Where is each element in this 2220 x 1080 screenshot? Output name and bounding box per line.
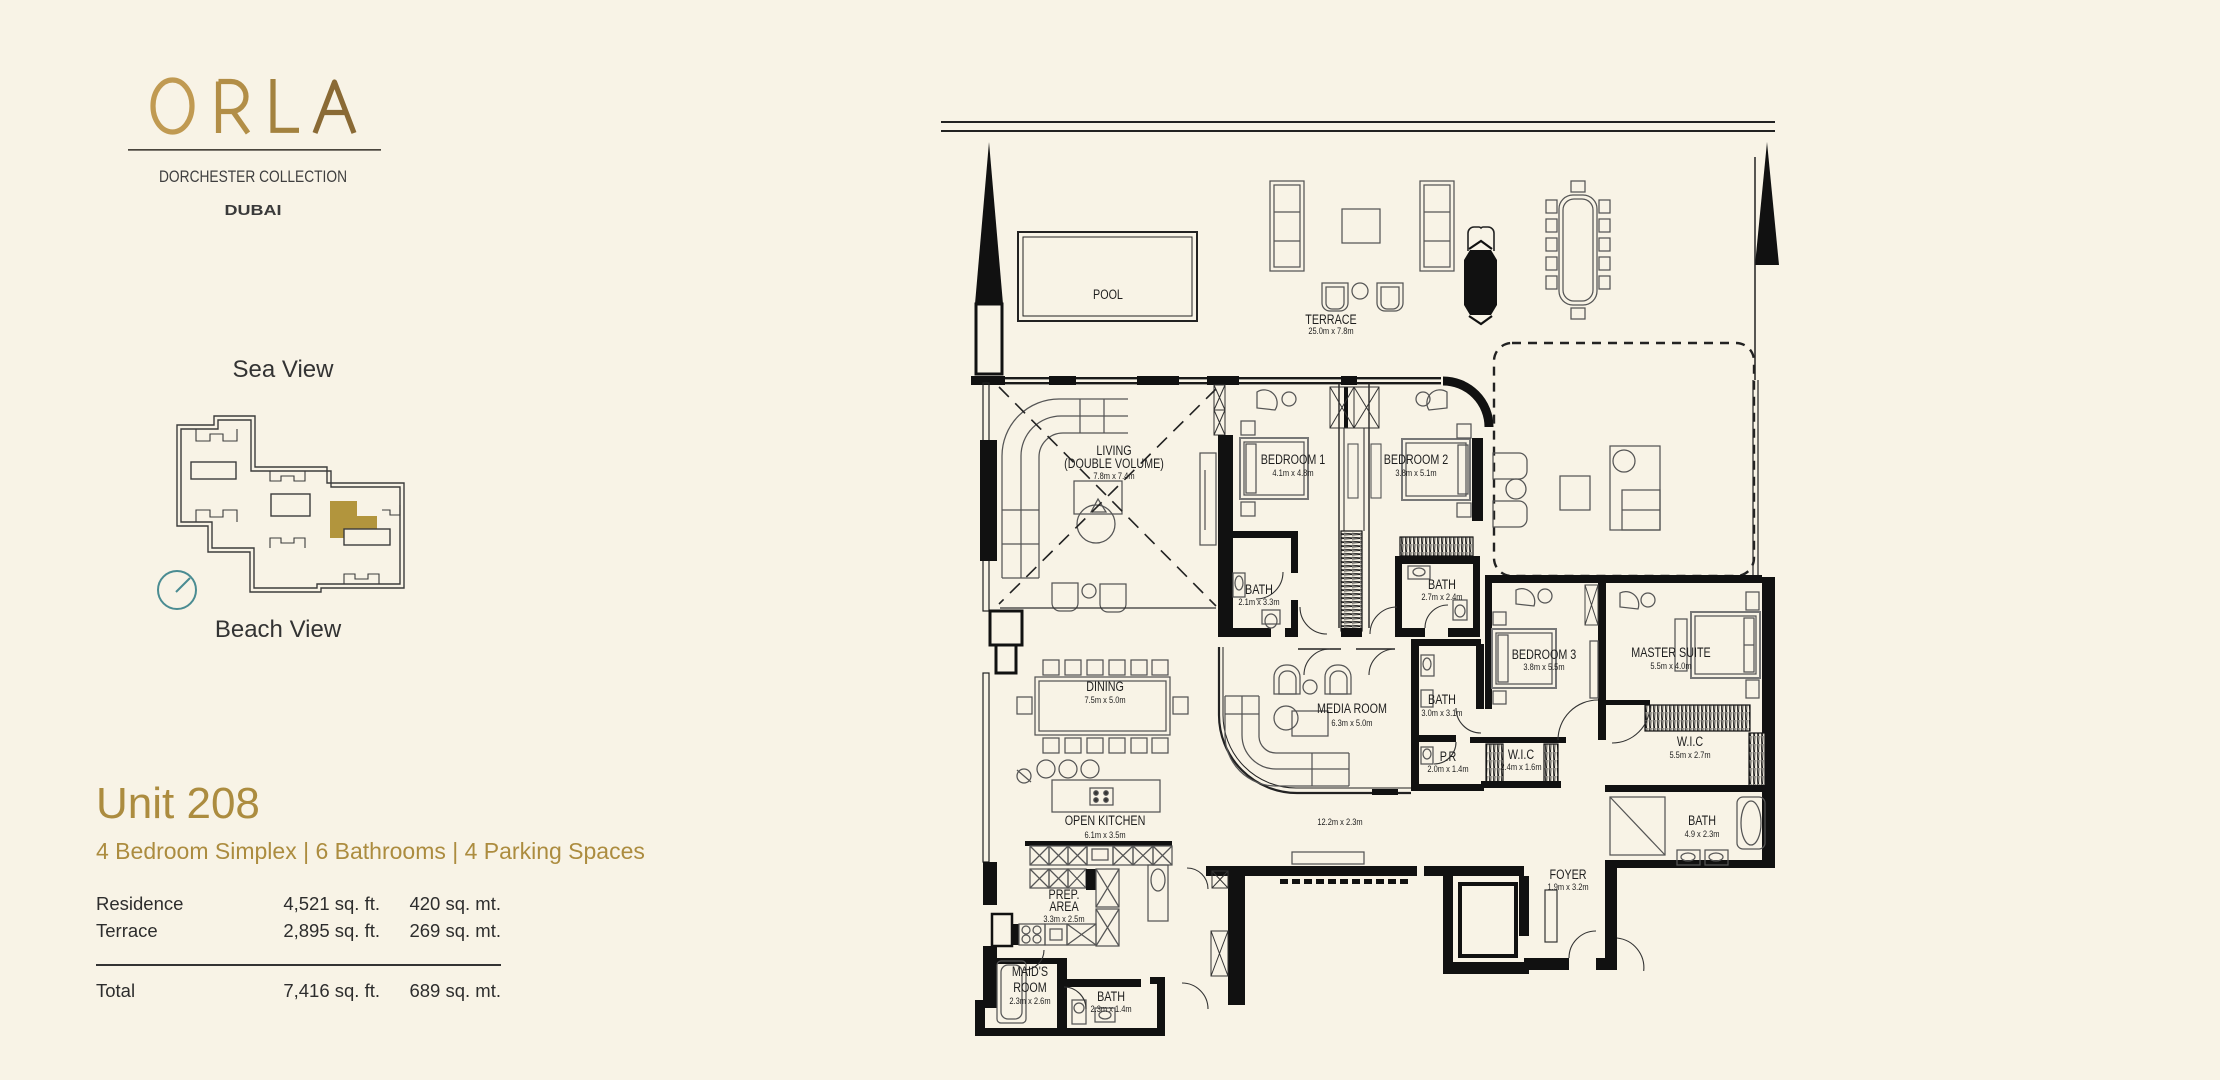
svg-text:3.8m x 5.5m: 3.8m x 5.5m <box>1523 661 1564 672</box>
svg-text:4.9 x 2.3m: 4.9 x 2.3m <box>1685 828 1720 839</box>
svg-text:BATH: BATH <box>1245 582 1273 598</box>
svg-text:4,521 sq. ft.: 4,521 sq. ft. <box>283 893 380 914</box>
svg-text:2.7m x 2.4m: 2.7m x 2.4m <box>1421 591 1462 602</box>
svg-text:BATH: BATH <box>1688 813 1716 829</box>
svg-text:FOYER: FOYER <box>1550 867 1587 883</box>
svg-text:25.0m x 7.8m: 25.0m x 7.8m <box>1308 325 1353 336</box>
svg-text:12.2m x 2.3m: 12.2m x 2.3m <box>1317 816 1362 827</box>
svg-text:7.8m x 7.4m: 7.8m x 7.4m <box>1093 470 1134 481</box>
svg-text:DUBAI: DUBAI <box>225 203 282 219</box>
svg-text:MAID'S: MAID'S <box>1012 964 1048 980</box>
svg-text:POOL: POOL <box>1093 287 1123 303</box>
svg-text:Sea View: Sea View <box>233 356 335 383</box>
svg-text:7.5m x 5.0m: 7.5m x 5.0m <box>1084 694 1125 705</box>
svg-text:BATH: BATH <box>1097 989 1125 1005</box>
svg-text:689 sq. mt.: 689 sq. mt. <box>409 980 501 1001</box>
svg-text:W.I.C: W.I.C <box>1677 734 1703 750</box>
svg-text:ROOM: ROOM <box>1013 980 1046 996</box>
svg-text:4 Bedroom Simplex | 6 Bathroom: 4 Bedroom Simplex | 6 Bathrooms | 4 Park… <box>96 838 645 864</box>
svg-text:2.4m x 1.6m: 2.4m x 1.6m <box>1500 761 1541 772</box>
svg-text:2.1m x 3.3m: 2.1m x 3.3m <box>1238 596 1279 607</box>
svg-text:DINING: DINING <box>1086 679 1124 695</box>
svg-text:3.3m x 2.5m: 3.3m x 2.5m <box>1043 913 1084 924</box>
svg-text:BATH: BATH <box>1428 577 1456 593</box>
svg-text:6.3m x 5.0m: 6.3m x 5.0m <box>1331 717 1372 728</box>
svg-text:2.3m x 2.6m: 2.3m x 2.6m <box>1009 995 1050 1006</box>
svg-text:3.0m x 3.1m: 3.0m x 3.1m <box>1421 707 1462 718</box>
svg-text:2.3m x 1.4m: 2.3m x 1.4m <box>1090 1003 1131 1014</box>
svg-text:420 sq. mt.: 420 sq. mt. <box>409 893 501 914</box>
svg-text:BEDROOM 3: BEDROOM 3 <box>1512 647 1577 663</box>
svg-text:P.R: P.R <box>1440 749 1457 765</box>
svg-text:DORCHESTER COLLECTION: DORCHESTER COLLECTION <box>159 168 347 186</box>
svg-text:BATH: BATH <box>1428 692 1456 708</box>
svg-text:2.0m x 1.4m: 2.0m x 1.4m <box>1427 763 1468 774</box>
svg-text:(DOUBLE VOLUME): (DOUBLE VOLUME) <box>1064 456 1164 472</box>
svg-text:W.I.C: W.I.C <box>1508 747 1534 763</box>
svg-text:1.9m x 3.2m: 1.9m x 3.2m <box>1547 881 1588 892</box>
svg-text:2,895 sq. ft.: 2,895 sq. ft. <box>283 920 380 941</box>
svg-text:BEDROOM 1: BEDROOM 1 <box>1261 452 1326 468</box>
svg-text:MASTER SUITE: MASTER SUITE <box>1631 645 1710 661</box>
svg-text:Unit 208: Unit 208 <box>96 779 260 828</box>
svg-text:269 sq. mt.: 269 sq. mt. <box>409 920 501 941</box>
svg-text:5.5m x 2.7m: 5.5m x 2.7m <box>1669 749 1710 760</box>
svg-text:Total: Total <box>96 980 135 1001</box>
svg-text:OPEN KITCHEN: OPEN KITCHEN <box>1065 813 1146 829</box>
svg-text:Residence: Residence <box>96 893 183 914</box>
svg-text:BEDROOM 2: BEDROOM 2 <box>1384 452 1449 468</box>
svg-text:AREA: AREA <box>1049 899 1079 915</box>
svg-text:7,416 sq. ft.: 7,416 sq. ft. <box>283 980 380 1001</box>
svg-text:3.8m x 5.1m: 3.8m x 5.1m <box>1395 467 1436 478</box>
svg-text:MEDIA ROOM: MEDIA ROOM <box>1317 701 1387 717</box>
svg-text:Terrace: Terrace <box>96 920 158 941</box>
svg-text:Beach View: Beach View <box>215 616 342 643</box>
svg-text:5.5m x 4.0m: 5.5m x 4.0m <box>1650 660 1691 671</box>
svg-text:6.1m x 3.5m: 6.1m x 3.5m <box>1084 829 1125 840</box>
svg-text:4.1m x 4.8m: 4.1m x 4.8m <box>1272 467 1313 478</box>
